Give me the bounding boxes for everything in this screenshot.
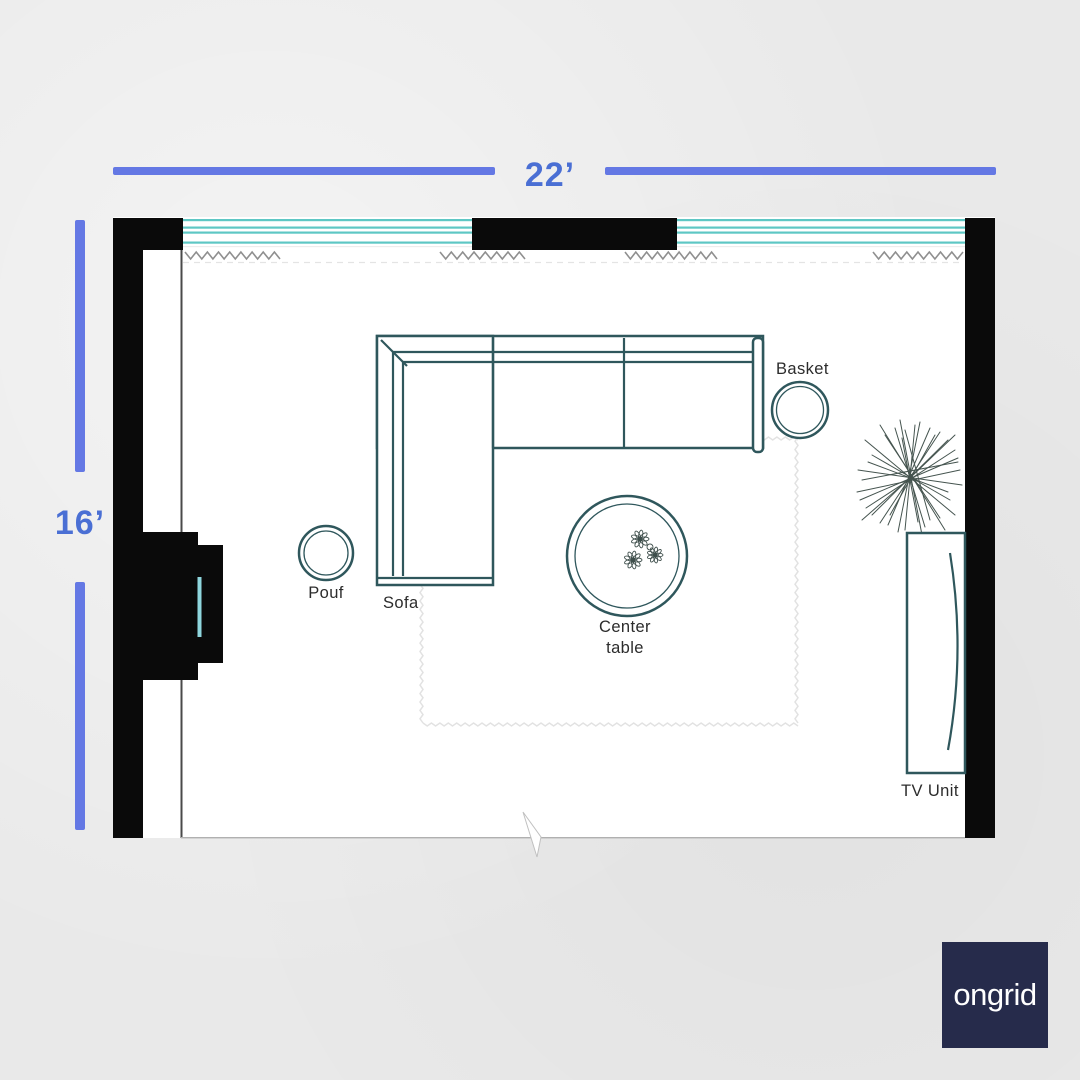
pouf [299,526,353,580]
floor-plan-drawing [0,0,1080,1080]
ongrid-logo: ongrid [942,942,1048,1048]
wall-top-left-segment [113,218,183,250]
tv-unit-label: TV Unit [901,781,959,802]
room-floor [113,217,995,838]
wall-top-middle-segment [472,218,677,250]
center-table [567,496,687,616]
pouf-label: Pouf [300,583,352,604]
wall-left [113,218,143,838]
wall-right [965,218,995,838]
tv-unit [907,533,965,773]
basket-label: Basket [776,359,829,380]
floor-plan-poster: 22’ 16’ [0,0,1080,1080]
fireplace-unit [143,532,223,680]
floor-bottom-edge [181,837,965,838]
sofa-label: Sofa [383,593,419,614]
ongrid-logo-text: ongrid [953,977,1036,1013]
center-table-label: Center table [582,617,668,658]
basket [772,382,828,438]
fireplace-accent-line [198,577,202,637]
